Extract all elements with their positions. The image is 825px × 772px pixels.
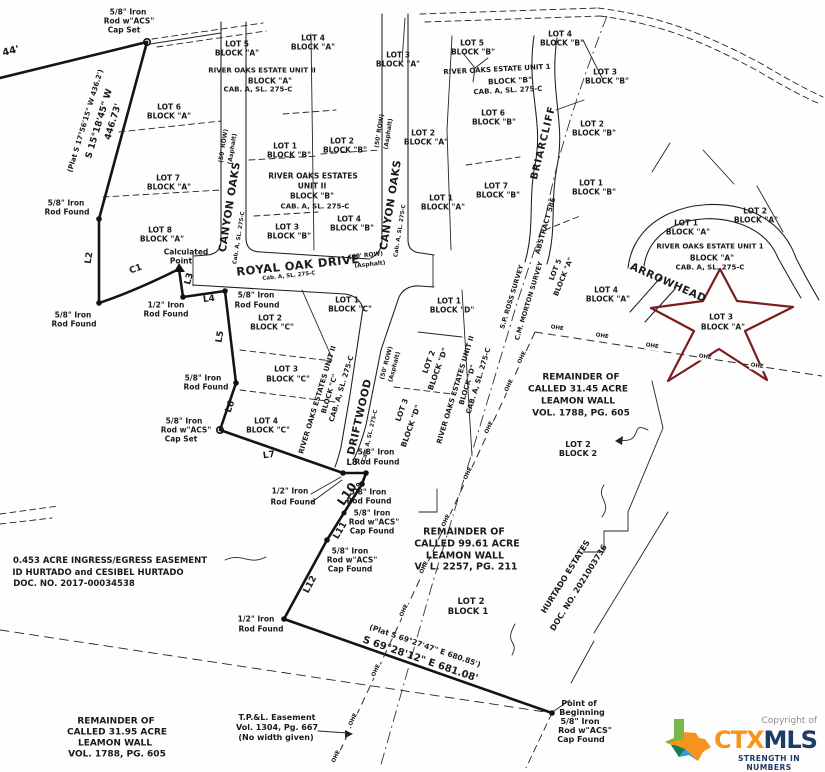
map-label: ID HURTADO and CESIBEL HURTADO: [12, 569, 183, 578]
map-label: Rod Found: [271, 498, 316, 506]
map-label: LOT 2: [411, 129, 435, 137]
map-label: Beginning: [559, 709, 605, 717]
map-label: REMAINDER OF: [542, 374, 619, 383]
map-label: Rod Found: [52, 320, 97, 328]
map-label: BLOCK "B": [572, 129, 616, 137]
logo-copyright-text: Copyright of: [761, 716, 817, 726]
map-label: LOT 3: [386, 51, 410, 59]
map-label: BLOCK "A": [147, 112, 191, 120]
map-label: LEAMON WALL: [78, 740, 152, 749]
map-label: LOT 5: [460, 39, 484, 47]
map-label: CALLED 31.45 ACRE: [528, 386, 628, 395]
map-label: BLOCK "A": [690, 254, 734, 262]
map-label: 5/8" Iron: [185, 374, 222, 382]
map-label: Rod Found: [347, 497, 392, 505]
map-label: BLOCK "C": [246, 426, 290, 434]
map-label: BLOCK "A": [147, 183, 191, 191]
map-label: CAB. A, SL. 275-C: [676, 265, 745, 272]
map-label: Rod w"ACS": [161, 426, 212, 434]
map-label: 5/8" Iron: [55, 311, 92, 319]
map-label: Rod Found: [235, 301, 280, 309]
map-label: BLOCK 2: [559, 450, 597, 458]
map-label: BLOCK "B": [290, 192, 334, 200]
map-label: RIVER OAKS ESTATE UNIT II: [208, 68, 316, 75]
map-label: LOT 7: [484, 182, 508, 190]
map-label: BLOCK "B": [323, 146, 367, 154]
map-label: BLOCK "A": [140, 235, 184, 243]
map-label: LOT 3: [275, 223, 299, 231]
map-label: 5/8" Iron: [358, 448, 395, 456]
map-label: BLOCK "B": [476, 191, 520, 199]
map-label: BLOCK "A": [734, 216, 778, 224]
map-label: BLOCK "B": [267, 232, 311, 240]
map-label: BLOCK "C": [266, 375, 310, 383]
map-label: VOL. 1788, PG. 605: [532, 410, 630, 419]
map-label: REMAINDER OF: [77, 718, 154, 727]
map-label: BLOCK "B": [488, 76, 532, 86]
map-label: CAB. A, SL. 275-C: [281, 204, 350, 211]
map-label: LOT 1: [335, 296, 359, 304]
map-label: RIVER OAKS ESTATES: [268, 172, 358, 180]
map-label: Cap Set: [108, 26, 141, 34]
map-label: L7: [262, 451, 275, 462]
map-label: Rod w"ACS": [104, 17, 155, 25]
map-label: LOT 4: [594, 286, 618, 294]
texas-logo-icon: [665, 719, 711, 761]
map-label: BLOCK "B": [572, 188, 616, 196]
map-label: RIVER OAKS ESTATE UNIT 1: [656, 244, 763, 251]
map-label: LOT 8: [148, 226, 172, 234]
map-label: 5/8" Iron: [48, 199, 85, 207]
map-label: BLOCK "A": [701, 323, 745, 331]
map-label: BLOCK "A": [215, 49, 259, 57]
map-label: 5/8" Iron: [238, 291, 275, 299]
map-label: BLOCK "C": [328, 305, 372, 313]
map-label: Vol. 1304, Pg. 667: [236, 724, 318, 732]
map-label: Point: [170, 257, 192, 265]
map-label: BLOCK 1: [448, 608, 489, 617]
map-label: 1/2" Iron: [238, 615, 275, 623]
map-label: LOT 1: [273, 142, 297, 150]
map-label: LOT 6: [157, 103, 181, 111]
map-label: BLOCK "A": [248, 77, 292, 85]
ctxmls-logo: CTXMLS: [714, 726, 817, 754]
map-label: Rod Found: [355, 458, 400, 466]
map-label: LOT 4: [301, 34, 325, 42]
map-label: LEAMON WALL: [426, 551, 504, 561]
map-label: L2: [85, 251, 96, 264]
map-label: BLOCK "A": [421, 203, 465, 211]
map-label: LOT 5: [225, 40, 249, 48]
logo-tagline-text: STRENGTH IN NUMBERS: [716, 754, 822, 772]
map-label: LOT 3: [274, 365, 298, 373]
map-label: T.P.&L. Easement: [239, 714, 316, 722]
map-label: BLOCK "B": [585, 77, 629, 85]
map-label: LOT 2: [565, 441, 590, 449]
map-label: BLOCK "B": [330, 224, 374, 232]
map-label: LOT 1: [674, 219, 698, 227]
map-label: BLOCK "B": [267, 151, 311, 159]
map-label: BLOCK "A": [291, 43, 335, 51]
map-label: Point of: [561, 700, 596, 708]
map-label: Rod Found: [184, 383, 229, 391]
map-label: CALLED 31.95 ACRE: [67, 729, 167, 738]
map-label: 1/2" Iron: [148, 301, 185, 309]
map-label: 5/8" Iron: [166, 417, 203, 425]
map-label: BLOCK "C": [250, 323, 294, 331]
map-label: Rod Found: [239, 625, 284, 633]
map-label: L4: [203, 295, 216, 305]
map-label: 0.453 ACRE INGRESS/EGRESS EASEMENT: [13, 557, 207, 566]
map-label: 5/8" Iron: [560, 718, 599, 726]
map-label: BLOCK "A": [666, 228, 710, 236]
map-label: BLOCK "B": [472, 118, 516, 126]
map-label: REMAINDER OF: [423, 527, 505, 537]
map-label: LOT 1: [429, 194, 453, 202]
map-label: 5/8" Iron: [350, 488, 387, 496]
logo-mls-text: MLS: [764, 726, 817, 754]
map-label: LOT 1: [579, 179, 603, 187]
map-label: BLOCK "B": [451, 48, 495, 56]
map-label: Rod Found: [45, 208, 90, 216]
map-label: Rod w"ACS": [349, 518, 400, 526]
map-label: 1/2" Iron: [272, 487, 309, 495]
map-label: LOT 3: [593, 68, 617, 76]
map-label: BLOCK "A": [404, 138, 448, 146]
map-label: UNIT II: [298, 182, 326, 190]
map-label: (No width given): [238, 734, 313, 742]
map-label: LEAMON WALL: [541, 398, 615, 407]
plat-map-page: { "map": { "title": "River Oaks Estates …: [0, 0, 825, 768]
map-label: LOT 2: [330, 137, 354, 145]
map-label: LOT 2: [743, 207, 767, 215]
map-label: BLOCK "A": [376, 60, 420, 68]
map-label: CAB. A, SL. 275-C: [224, 87, 293, 94]
map-label: Rod Found: [144, 310, 189, 318]
map-label: Rod w"ACS": [558, 727, 612, 735]
map-label: LOT 2: [580, 120, 604, 128]
map-label: LOT 6: [481, 109, 505, 117]
map-label: 5/8" Iron: [332, 547, 369, 555]
map-label: LOT 2: [457, 598, 484, 607]
map-label: CALLED 99.61 ACRE: [414, 539, 520, 549]
map-label: LOT 4: [548, 30, 572, 38]
map-label: 5/8" Iron: [354, 509, 391, 517]
map-label: Calculated: [164, 248, 209, 256]
map-label: DOC. NO. 2017-00034538: [13, 580, 135, 589]
map-label: Cap Found: [350, 527, 395, 535]
map-label: BLOCK "B": [540, 39, 584, 47]
map-label: Cap Found: [557, 736, 605, 744]
map-label: LOT 7: [156, 174, 180, 182]
logo-ctx-text: CTX: [714, 726, 764, 754]
map-label: Rod w"ACS": [327, 556, 378, 564]
map-label: BLOCK "A": [586, 295, 630, 303]
map-label: 5/8" Iron: [110, 8, 147, 16]
map-label: LOT 1: [437, 297, 461, 305]
map-label: Cap Set: [165, 435, 198, 443]
map-label: Cap Found: [328, 565, 373, 573]
map-label: VOL. 1788, PG. 605: [68, 751, 166, 760]
map-label: LOT 4: [337, 215, 361, 223]
map-label: BLOCK "D": [430, 306, 475, 314]
map-label: LOT 4: [254, 417, 278, 425]
map-label: LOT 2: [258, 314, 282, 322]
map-label: LOT 3: [709, 313, 733, 321]
